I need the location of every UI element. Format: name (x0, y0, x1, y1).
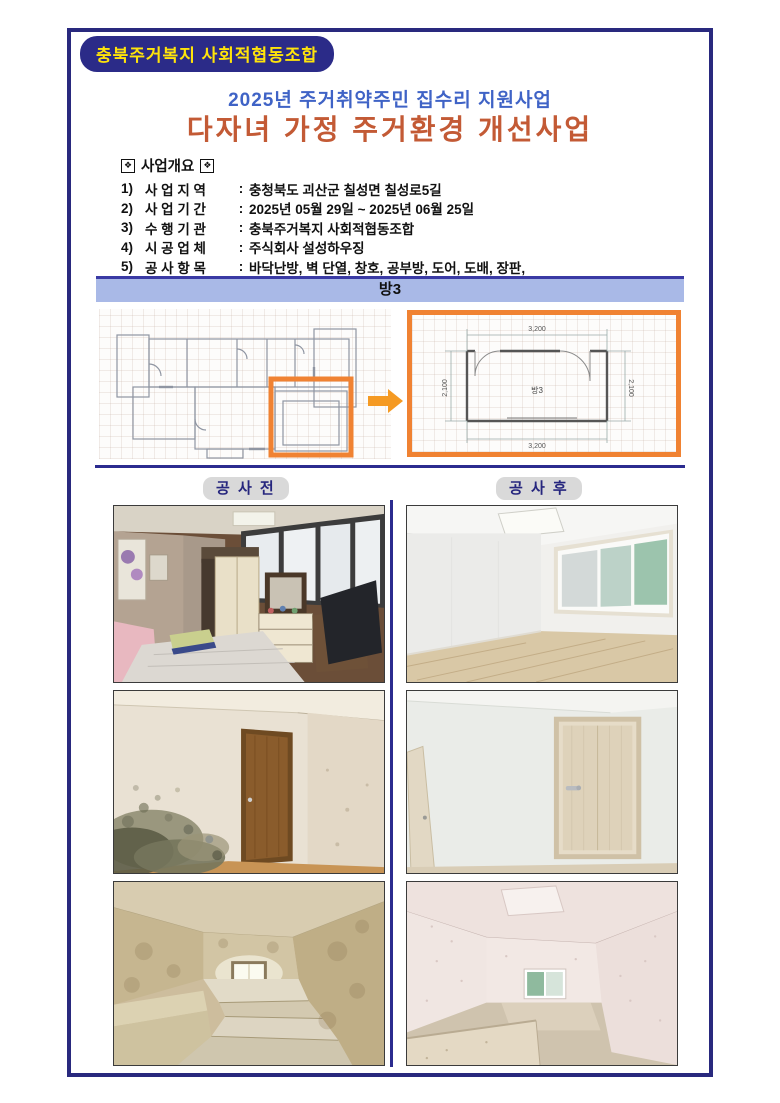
photo-before-attic (113, 881, 385, 1066)
item-value: 바닥난방, 벽 단열, 창호, 공부방, 도어, 도배, 장판, (249, 257, 601, 277)
item-label: 공 사 항 목 (145, 257, 233, 277)
project-title: 다자녀 가정 주거환경 개선사업 (67, 108, 713, 148)
item-label: 사 업 지 역 (145, 179, 233, 199)
overview-heading-text: 사업개요 (141, 155, 194, 176)
item-label: 사 업 기 간 (145, 198, 233, 218)
item-number: 4) (121, 240, 145, 255)
item-value: 충북주거복지 사회적협동조합 (249, 218, 601, 238)
led-ceiling-light (498, 508, 564, 537)
item-label: 시 공 업 체 (145, 237, 233, 257)
item-value: 2025년 05월 29일 ~ 2025년 06월 25일 (249, 198, 601, 218)
floorplan-overview-drawing (99, 309, 391, 459)
item-value: 주식회사 설성하우징 (249, 237, 601, 257)
before-label-pill: 공 사 전 (203, 477, 289, 500)
item-separator: : (233, 181, 249, 196)
diamond-box-icon: ❖ (200, 159, 214, 173)
item-separator: : (233, 220, 249, 235)
floorplan-overview (99, 309, 391, 459)
item-number: 3) (121, 220, 145, 235)
overview-item-contractor: 4) 시 공 업 체 : 주식회사 설성하우징 (121, 238, 601, 258)
dim-right: 2,100 (627, 379, 634, 397)
item-label: 수 행 기 관 (145, 218, 233, 238)
overview-list: 1) 사 업 지 역 : 충청북도 괴산군 칠성면 칠성로5길 2) 사 업 기… (121, 179, 601, 277)
step (219, 1001, 322, 1019)
photo-after-door (406, 690, 678, 874)
room-banner: 방3 (96, 276, 684, 302)
item-value: 충청북도 괴산군 칠성면 칠성로5길 (249, 179, 601, 199)
item-separator: : (233, 201, 249, 216)
overview-item-period: 2) 사 업 기 간 : 2025년 05월 29일 ~ 2025년 06월 2… (121, 199, 601, 219)
overview-heading: ❖ 사업개요 ❖ (121, 155, 214, 176)
zoom-arrow-icon (368, 388, 404, 414)
skylight (501, 886, 564, 916)
overview-item-region: 1) 사 업 지 역 : 충청북도 괴산군 칠성면 칠성로5길 (121, 179, 601, 199)
org-badge: 충북주거복지 사회적협동조합 (80, 36, 334, 72)
photo-before-mold-wall (113, 690, 385, 874)
photo-after-room (406, 505, 678, 683)
overview-item-agency: 3) 수 행 기 관 : 충북주거복지 사회적협동조합 (121, 218, 601, 238)
window-pane (634, 539, 667, 605)
dim-left: 2,100 (442, 379, 449, 397)
item-separator: : (233, 240, 249, 255)
dim-bottom: 3,200 (528, 443, 546, 450)
floorplan-detail-drawing: 3,200 3,200 2,100 2,100 방3 (412, 315, 676, 452)
column-divider (390, 500, 393, 1067)
after-label-pill: 공 사 후 (496, 477, 582, 500)
photo-after-attic (406, 881, 678, 1066)
ceiling-light (233, 512, 275, 526)
room-label: 방3 (531, 385, 543, 395)
overview-item-workscope: 5) 공 사 항 목 : 바닥난방, 벽 단열, 창호, 공부방, 도어, 도배… (121, 257, 601, 277)
dim-top: 3,200 (528, 326, 546, 333)
item-number: 1) (121, 181, 145, 196)
photo-before-bedroom (113, 505, 385, 683)
document-page: 충북주거복지 사회적협동조합 2025년 주거취약주민 집수리 지원사업 다자녀… (0, 0, 780, 1103)
item-number: 5) (121, 259, 145, 274)
diamond-box-icon: ❖ (121, 159, 135, 173)
item-number: 2) (121, 201, 145, 216)
floorplan-detail: 3,200 3,200 2,100 2,100 방3 (407, 310, 681, 457)
item-separator: : (233, 259, 249, 274)
section-divider (95, 465, 685, 468)
